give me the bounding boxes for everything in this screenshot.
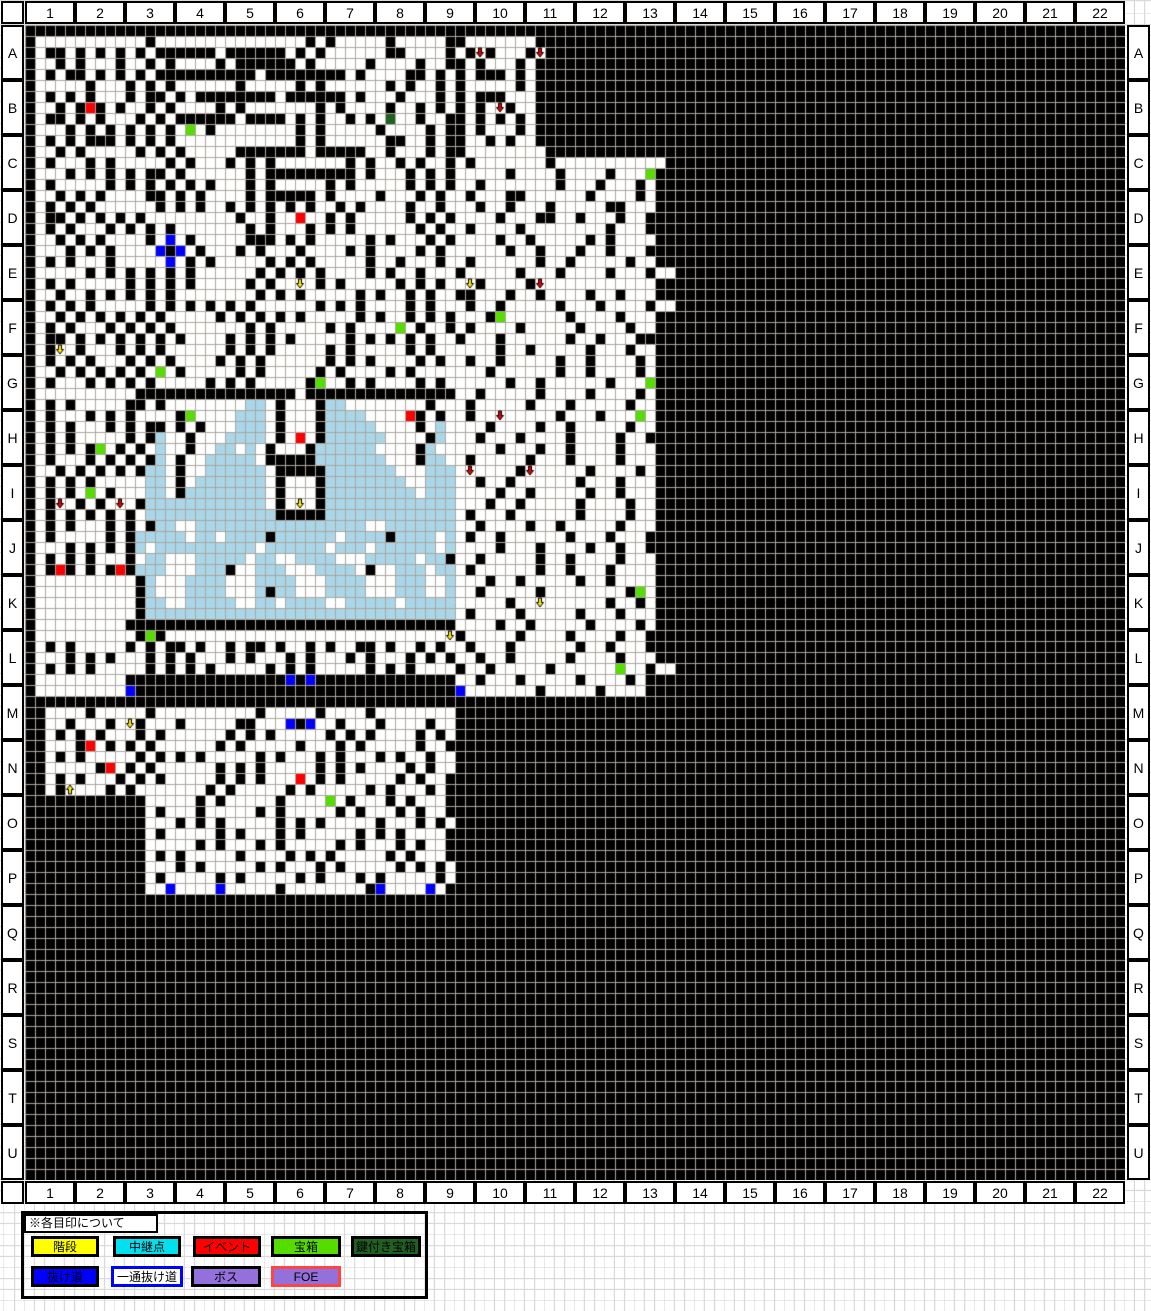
row-header-right-J: J [1127,520,1150,575]
col-header-1: 1 [25,1,75,24]
col-header-bottom-10: 10 [475,1181,525,1204]
row-header-right-O: O [1127,795,1150,850]
col-header-bottom-16: 16 [775,1181,825,1204]
row-header-right-A: A [1127,25,1150,80]
col-header-bottom-17: 17 [825,1181,875,1204]
col-header-bottom-19: 19 [925,1181,975,1204]
col-header-bottom-20: 20 [975,1181,1025,1204]
col-header-bottom-13: 13 [625,1181,675,1204]
row-header-right-C: C [1127,135,1150,190]
legend-item-1: 階段 [31,1236,99,1257]
row-header-N: N [1,740,24,795]
row-header-D: D [1,190,24,245]
legend-item-3: イベント [193,1236,261,1257]
row-header-U: U [1,1125,24,1180]
row-header-right-I: I [1127,465,1150,520]
col-header-17: 17 [825,1,875,24]
header-corner-bottom-left [1,1181,24,1204]
col-header-5: 5 [225,1,275,24]
col-header-bottom-7: 7 [325,1181,375,1204]
row-header-right-K: K [1127,575,1150,630]
col-header-bottom-15: 15 [725,1181,775,1204]
row-header-right-P: P [1127,850,1150,905]
col-header-bottom-2: 2 [75,1181,125,1204]
col-header-14: 14 [675,1,725,24]
col-header-6: 6 [275,1,325,24]
legend-item-8: ボス [191,1266,261,1287]
col-header-bottom-9: 9 [425,1181,475,1204]
dungeon-map-canvas [25,25,1125,1180]
row-header-right-S: S [1127,1015,1150,1070]
col-header-12: 12 [575,1,625,24]
col-header-bottom-11: 11 [525,1181,575,1204]
col-header-7: 7 [325,1,375,24]
col-header-16: 16 [775,1,825,24]
row-header-right-L: L [1127,630,1150,685]
col-header-11: 11 [525,1,575,24]
row-header-M: M [1,685,24,740]
col-header-bottom-12: 12 [575,1181,625,1204]
row-header-right-G: G [1127,355,1150,410]
col-header-15: 15 [725,1,775,24]
col-header-19: 19 [925,1,975,24]
row-header-B: B [1,80,24,135]
legend-box: ※各目印について 階段中継点イベント宝箱鍵付き宝箱抜け道一通抜け道ボスFOE [21,1211,428,1299]
col-header-bottom-22: 22 [1075,1181,1125,1204]
row-header-T: T [1,1070,24,1125]
col-header-13: 13 [625,1,675,24]
row-header-C: C [1,135,24,190]
row-header-right-Q: Q [1127,905,1150,960]
row-header-right-F: F [1127,300,1150,355]
header-corner-top-left [1,1,24,24]
col-header-8: 8 [375,1,425,24]
col-header-18: 18 [875,1,925,24]
row-header-J: J [1,520,24,575]
col-header-bottom-6: 6 [275,1181,325,1204]
row-header-H: H [1,410,24,465]
col-header-bottom-5: 5 [225,1181,275,1204]
row-header-P: P [1,850,24,905]
legend-item-4: 宝箱 [271,1236,341,1257]
row-header-L: L [1,630,24,685]
col-header-bottom-4: 4 [175,1181,225,1204]
row-header-right-T: T [1127,1070,1150,1125]
legend-title: ※各目印について [24,1214,158,1233]
col-header-22: 22 [1075,1,1125,24]
row-header-right-B: B [1127,80,1150,135]
col-header-2: 2 [75,1,125,24]
row-header-right-N: N [1127,740,1150,795]
row-header-right-M: M [1127,685,1150,740]
legend-item-7: 一通抜け道 [111,1266,183,1287]
row-header-right-E: E [1127,245,1150,300]
legend-item-6: 抜け道 [31,1266,99,1287]
row-header-right-U: U [1127,1125,1150,1180]
page: ※各目印について 階段中継点イベント宝箱鍵付き宝箱抜け道一通抜け道ボスFOE 1… [0,0,1151,1311]
col-header-bottom-14: 14 [675,1181,725,1204]
col-header-21: 21 [1025,1,1075,24]
row-header-S: S [1,1015,24,1070]
legend-item-9: FOE [271,1266,341,1287]
row-header-I: I [1,465,24,520]
col-header-bottom-18: 18 [875,1181,925,1204]
col-header-bottom-1: 1 [25,1181,75,1204]
legend-item-5: 鍵付き宝箱 [351,1236,421,1257]
row-header-right-R: R [1127,960,1150,1015]
row-header-G: G [1,355,24,410]
col-header-bottom-8: 8 [375,1181,425,1204]
row-header-O: O [1,795,24,850]
row-header-Q: Q [1,905,24,960]
col-header-9: 9 [425,1,475,24]
col-header-20: 20 [975,1,1025,24]
row-header-E: E [1,245,24,300]
col-header-bottom-21: 21 [1025,1181,1075,1204]
row-header-right-H: H [1127,410,1150,465]
legend-item-2: 中継点 [113,1236,181,1257]
row-header-right-D: D [1127,190,1150,245]
col-header-3: 3 [125,1,175,24]
row-header-F: F [1,300,24,355]
col-header-bottom-3: 3 [125,1181,175,1204]
row-header-K: K [1,575,24,630]
row-header-A: A [1,25,24,80]
col-header-4: 4 [175,1,225,24]
row-header-R: R [1,960,24,1015]
col-header-10: 10 [475,1,525,24]
